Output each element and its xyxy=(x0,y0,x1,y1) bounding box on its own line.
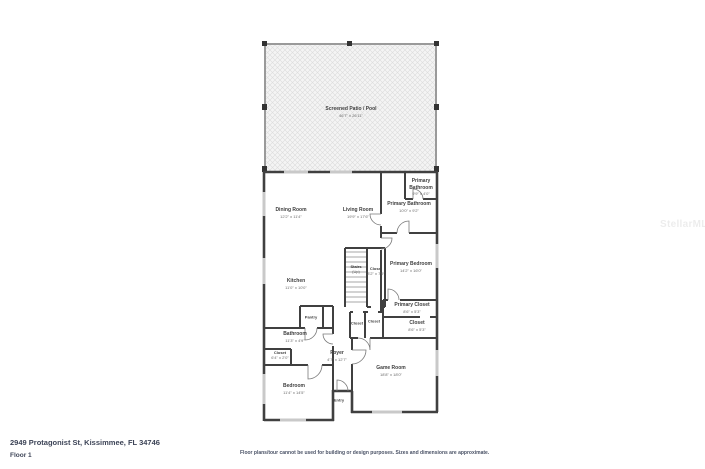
door-swings xyxy=(305,189,423,391)
interior-walls xyxy=(264,172,437,391)
exterior-walls xyxy=(263,172,438,421)
windows xyxy=(264,172,437,420)
floor-plan-drawing xyxy=(0,0,705,469)
property-address: 2949 Protagonist St, Kissimmee, FL 34746 xyxy=(10,438,160,447)
stair-treads xyxy=(346,252,366,302)
stellar-mls-watermark: StellarMLS xyxy=(660,219,705,230)
floor-plan-page: Screened Patio / Pool 46'7" x 26'11" Din… xyxy=(0,0,705,469)
floor-number-label: Floor 1 xyxy=(10,452,32,459)
screened-patio-area xyxy=(262,41,439,172)
disclaimer-text: Floor plans/tour cannot be used for buil… xyxy=(240,450,489,456)
